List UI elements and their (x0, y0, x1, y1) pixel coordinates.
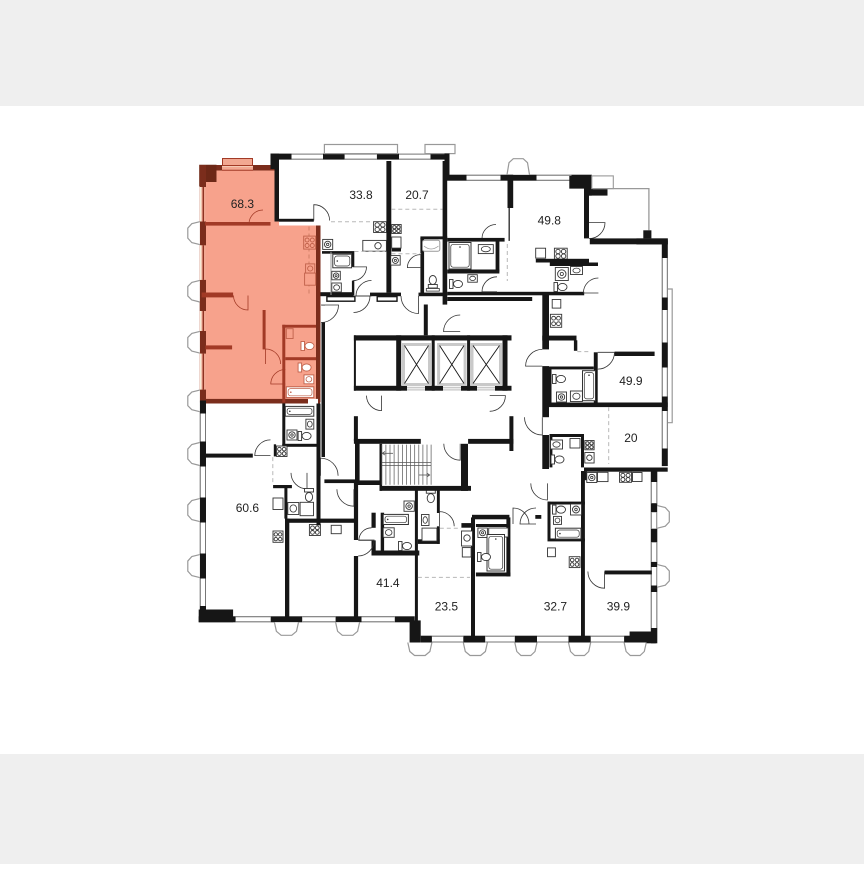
svg-text:60.6: 60.6 (236, 501, 260, 515)
svg-text:68.3: 68.3 (231, 197, 255, 211)
svg-text:23.5: 23.5 (435, 600, 459, 614)
svg-text:33.8: 33.8 (349, 188, 373, 202)
svg-text:20: 20 (624, 431, 638, 445)
svg-text:39.9: 39.9 (607, 600, 631, 614)
svg-text:49.9: 49.9 (619, 374, 643, 388)
svg-text:41.4: 41.4 (376, 576, 400, 590)
svg-text:20.7: 20.7 (405, 188, 429, 202)
svg-text:49.8: 49.8 (538, 214, 562, 228)
svg-text:32.7: 32.7 (544, 600, 568, 614)
